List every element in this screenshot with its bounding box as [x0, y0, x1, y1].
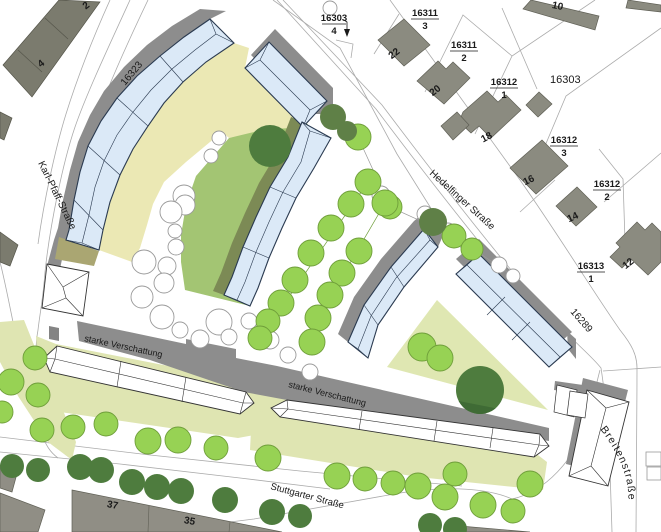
- svg-text:4: 4: [331, 26, 337, 37]
- svg-text:3: 3: [561, 148, 566, 159]
- svg-text:16312: 16312: [551, 135, 577, 146]
- svg-text:16312: 16312: [594, 179, 620, 190]
- svg-text:16312: 16312: [491, 77, 517, 88]
- svg-text:3: 3: [422, 21, 427, 32]
- svg-text:16311: 16311: [451, 40, 478, 51]
- svg-text:16311: 16311: [412, 8, 439, 19]
- svg-text:16303: 16303: [321, 13, 347, 24]
- svg-text:2: 2: [604, 192, 609, 203]
- svg-text:1: 1: [588, 274, 594, 285]
- svg-text:1: 1: [501, 90, 507, 101]
- svg-text:2: 2: [461, 53, 466, 64]
- svg-text:16303: 16303: [550, 74, 581, 86]
- svg-text:16313: 16313: [578, 261, 604, 272]
